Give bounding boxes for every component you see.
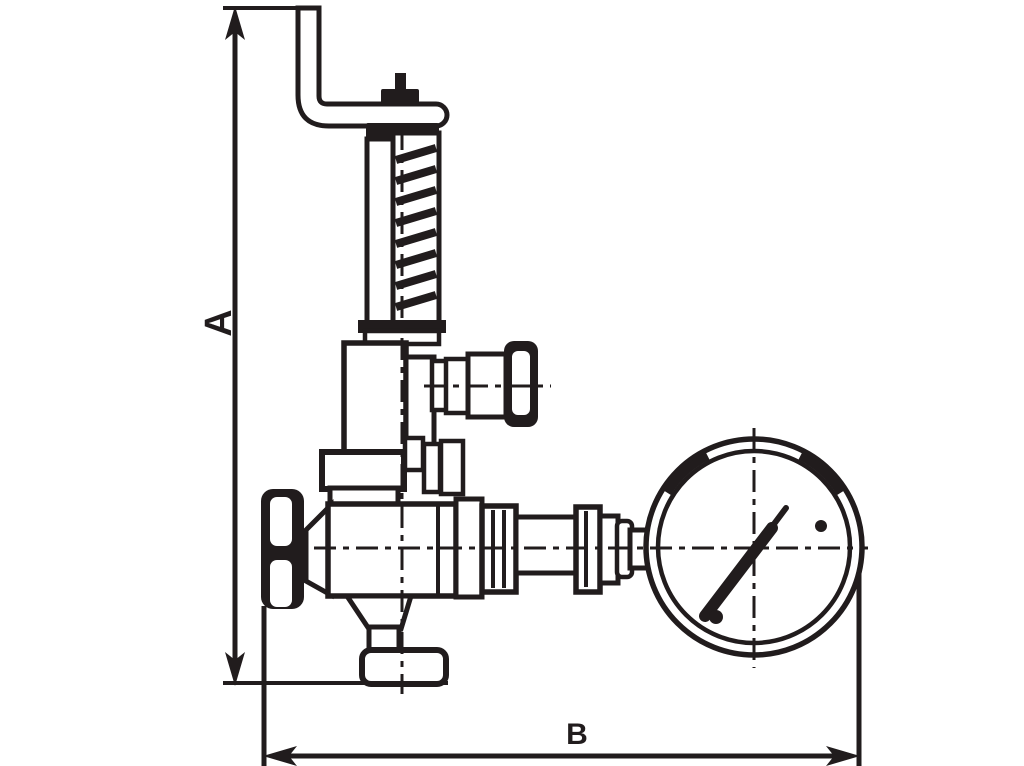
bonnet [344, 343, 406, 453]
gauge-screw-right [815, 520, 827, 532]
inlet-flange [362, 650, 446, 684]
union-fitting-2 [424, 444, 440, 492]
drawing-canvas: A B [0, 0, 1024, 766]
gauge-screw-left [709, 610, 723, 624]
handwheel-slot-bottom [270, 560, 292, 607]
handwheel-slot-top [270, 497, 292, 546]
dim-b-label: B [566, 718, 588, 751]
valve-drawing: A B [0, 0, 1024, 766]
spring-cap [381, 89, 419, 106]
union-fitting-1 [405, 438, 423, 470]
dim-a-label: A [198, 309, 240, 336]
lever-arm [298, 8, 447, 126]
spring-guide-rod [367, 139, 393, 323]
outlet-cylinder [516, 517, 576, 573]
gland-union [322, 452, 404, 489]
union-fitting-3 [441, 441, 463, 494]
test-valve-knob-slot [512, 351, 530, 415]
valve-assembly [261, 8, 862, 684]
